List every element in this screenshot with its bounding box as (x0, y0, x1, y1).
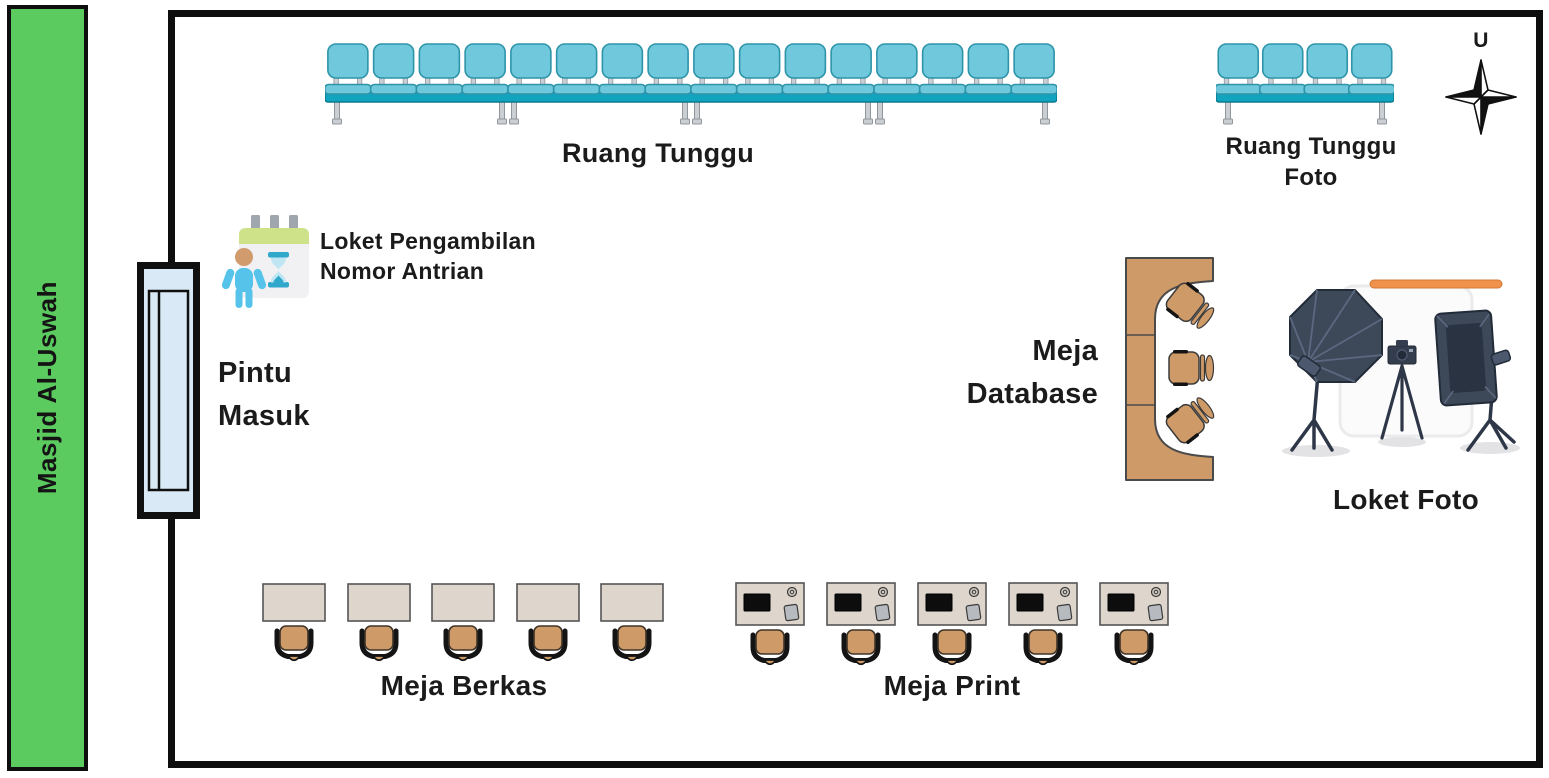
pintu-masuk-label: Pintu Masuk (218, 352, 310, 438)
meja-print-row (735, 582, 1169, 678)
printer-icon (966, 604, 981, 621)
monitor-icon (1017, 594, 1043, 611)
compass-rose-icon (1437, 55, 1525, 139)
queue-number-icon (222, 213, 314, 323)
berkas-desk-with-chair (262, 583, 326, 667)
desk-chair-icon (277, 626, 311, 660)
desk-chair-icon (531, 626, 565, 660)
masjid-label: Masjid Al-Uswah (32, 281, 63, 494)
entrance-door-icon (137, 262, 200, 519)
berkas-desk-with-chair (431, 583, 495, 667)
berkas-desk-with-chair (347, 583, 411, 667)
desk-chair-icon (935, 630, 969, 664)
desk-chair-icon (753, 630, 787, 664)
print-desk-with-chair (1099, 582, 1169, 678)
desk-top (601, 584, 663, 621)
berkas-desk-with-chair (516, 583, 580, 667)
desk-chair-icon (1117, 630, 1151, 664)
printer-icon (1148, 604, 1163, 621)
floor-plan: Masjid Al-Uswah Ruang Tunggu Ruang Tungg… (0, 0, 1549, 778)
print-desk-with-chair (1008, 582, 1078, 678)
berkas-desk-with-chair (600, 583, 664, 667)
desk-chair-icon (362, 626, 396, 660)
desk-top (348, 584, 410, 621)
waiting-bench-foto-icon (1216, 42, 1394, 127)
print-desk-with-chair (735, 582, 805, 678)
desk-chair-icon (615, 626, 649, 660)
masjid-strip: Masjid Al-Uswah (7, 5, 88, 771)
swivel-chair-icon (1169, 350, 1214, 386)
photo-studio-icon (1278, 270, 1526, 465)
loket-antrian-label: Loket Pengambilan Nomor Antrian (320, 226, 536, 286)
meja-berkas-row (262, 583, 666, 667)
meja-print-label: Meja Print (735, 668, 1169, 703)
print-desk-with-chair (917, 582, 987, 678)
database-chairs (1162, 279, 1215, 447)
cup-icon (1152, 588, 1161, 597)
monitor-icon (926, 594, 952, 611)
cup-icon (879, 588, 888, 597)
ruang-tunggu-foto-label: Ruang Tunggu Foto (1186, 131, 1436, 193)
desk-chair-icon (446, 626, 480, 660)
print-desk-with-chair (826, 582, 896, 678)
waiting-bench-icon (325, 42, 1057, 127)
desk-top (432, 584, 494, 621)
monitor-icon (744, 594, 770, 611)
meja-berkas-label: Meja Berkas (262, 668, 666, 703)
monitor-icon (1108, 594, 1134, 611)
desk-chair-icon (1026, 630, 1060, 664)
cup-icon (1061, 588, 1070, 597)
swivel-chair-icon (1162, 391, 1215, 447)
desk-top (263, 584, 325, 621)
meja-database-label: Meja Database (898, 330, 1098, 416)
printer-icon (784, 604, 799, 621)
printer-icon (875, 604, 890, 621)
printer-icon (1057, 604, 1072, 621)
desk-top (517, 584, 579, 621)
loket-foto-label: Loket Foto (1306, 482, 1506, 517)
monitor-icon (835, 594, 861, 611)
ruang-tunggu-label: Ruang Tunggu (508, 137, 808, 171)
backdrop-rail (1370, 280, 1502, 288)
cup-icon (788, 588, 797, 597)
desk-chair-icon (844, 630, 878, 664)
cup-icon (970, 588, 979, 597)
compass-north-label: U (1456, 28, 1506, 54)
database-desk-icon (1125, 257, 1215, 481)
